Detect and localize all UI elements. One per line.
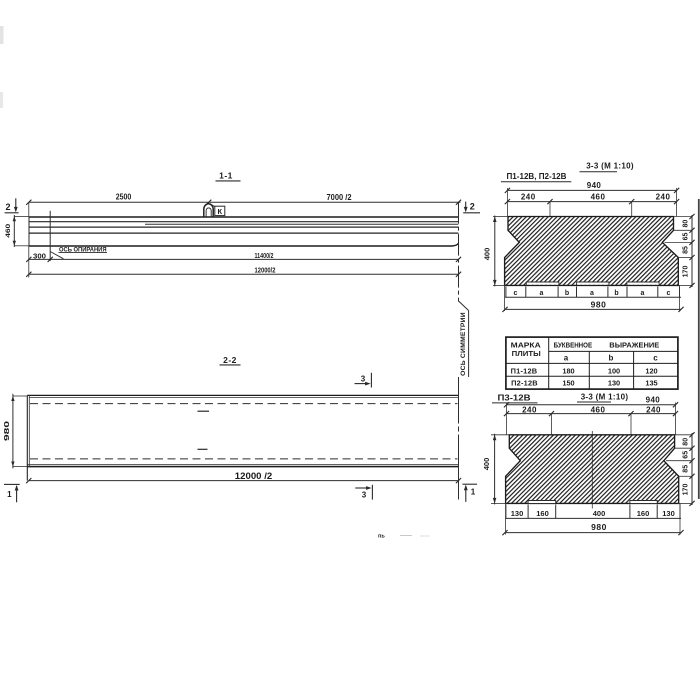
svg-text:150: 150 [562,379,574,388]
svg-text:130: 130 [608,379,620,388]
svg-text:300: 300 [33,251,46,260]
svg-text:240: 240 [646,405,661,414]
svg-text:1: 1 [471,487,476,496]
svg-text:c: c [667,290,671,297]
svg-text:b: b [609,354,614,363]
svg-text:85: 85 [683,246,690,254]
svg-text:980: 980 [2,421,11,441]
svg-text:460: 460 [591,405,606,414]
svg-text:65: 65 [683,233,690,241]
svg-text:80: 80 [683,220,690,228]
svg-text:ОСЬ СИММЕТРИИ: ОСЬ СИММЕТРИИ [460,312,467,376]
svg-text:180: 180 [562,366,574,375]
svg-text:a: a [540,290,544,297]
svg-text:1-1: 1-1 [219,171,233,181]
svg-text:П3-12В: П3-12В [498,393,531,402]
svg-text:400: 400 [482,458,491,471]
svg-text:a: a [590,290,594,297]
svg-text:БУКВЕННОЕ: БУКВЕННОЕ [554,340,593,349]
svg-text:65: 65 [683,451,690,459]
svg-text:1: 1 [7,490,12,499]
svg-text:120: 120 [645,366,657,375]
svg-text:460: 460 [591,192,606,201]
svg-text:240: 240 [656,192,671,201]
svg-text:80: 80 [683,438,690,446]
svg-text:П2-12В: П2-12В [511,379,538,388]
svg-text:11400/2: 11400/2 [255,251,274,260]
svg-text:ПЛИТЫ: ПЛИТЫ [512,349,541,358]
svg-text:240: 240 [521,192,536,201]
svg-text:400: 400 [593,509,606,518]
svg-text:3-3 (М 1:10): 3-3 (М 1:10) [581,393,629,402]
svg-text:940: 940 [646,396,661,405]
svg-text:160: 160 [637,509,650,518]
svg-text:b: b [614,290,618,297]
svg-text:460: 460 [5,224,12,238]
svg-text:2-2: 2-2 [223,355,237,365]
svg-text:пь: пь [378,534,385,540]
svg-text:7000 /2: 7000 /2 [327,193,353,202]
svg-text:100: 100 [608,366,620,375]
svg-text:12000/2: 12000/2 [255,266,276,275]
svg-text:3: 3 [362,491,367,500]
svg-text:160: 160 [536,509,549,518]
svg-text:К: К [218,207,223,216]
svg-text:c: c [514,290,518,297]
svg-text:П1-12В: П1-12В [511,366,538,375]
svg-text:170: 170 [683,266,690,278]
svg-text:3-3 (М 1:10): 3-3 (М 1:10) [586,162,634,171]
svg-text:135: 135 [645,379,657,388]
svg-text:b: b [565,290,569,297]
svg-text:170: 170 [683,484,690,496]
svg-text:2: 2 [5,202,10,212]
svg-text:85: 85 [683,465,690,473]
svg-text:c: c [653,354,658,363]
svg-text:940: 940 [587,181,602,190]
svg-text:a: a [641,290,645,297]
svg-text:П1-12В, П2-12В: П1-12В, П2-12В [507,172,567,181]
svg-text:130: 130 [662,509,675,518]
svg-text:980: 980 [591,299,607,309]
svg-text:980: 980 [591,522,607,532]
svg-text:2500: 2500 [116,192,132,201]
svg-text:a: a [564,354,569,363]
svg-text:2: 2 [470,202,475,212]
svg-text:3: 3 [361,374,366,383]
svg-text:12000 /2: 12000 /2 [235,471,273,481]
svg-text:400: 400 [483,248,492,261]
svg-text:ВЫРАЖЕНИЕ: ВЫРАЖЕНИЕ [609,340,659,349]
svg-text:130: 130 [511,509,524,518]
